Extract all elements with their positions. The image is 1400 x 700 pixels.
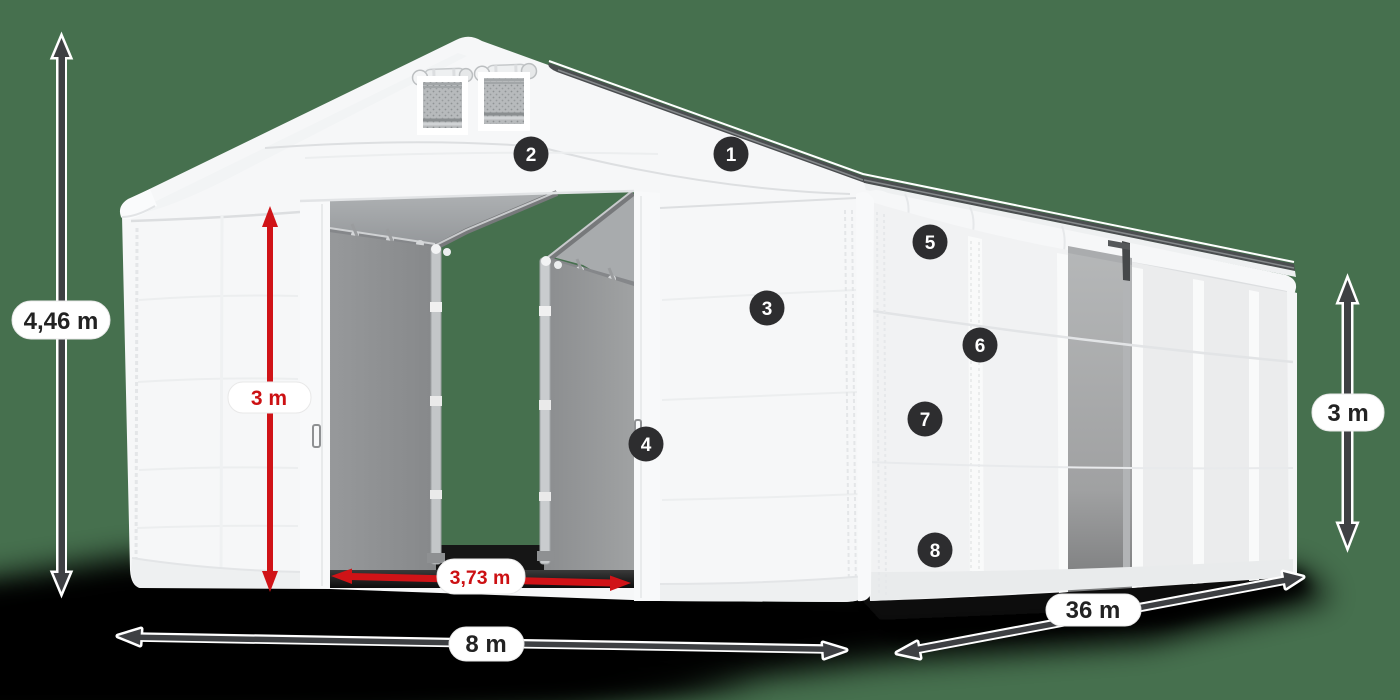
svg-text:4: 4 — [641, 435, 652, 456]
svg-text:3,73 m: 3,73 m — [450, 567, 511, 589]
svg-text:1: 1 — [726, 145, 737, 166]
svg-text:8 m: 8 m — [465, 631, 506, 658]
svg-text:5: 5 — [925, 233, 936, 254]
svg-text:4,46 m: 4,46 m — [24, 308, 99, 335]
svg-text:8: 8 — [930, 541, 941, 562]
svg-text:6: 6 — [975, 336, 986, 357]
svg-text:7: 7 — [920, 410, 931, 431]
svg-text:3: 3 — [762, 299, 773, 320]
svg-text:3 m: 3 m — [1327, 400, 1368, 427]
svg-text:36 m: 36 m — [1066, 597, 1121, 624]
svg-text:3 m: 3 m — [251, 387, 287, 410]
svg-text:2: 2 — [526, 145, 537, 166]
